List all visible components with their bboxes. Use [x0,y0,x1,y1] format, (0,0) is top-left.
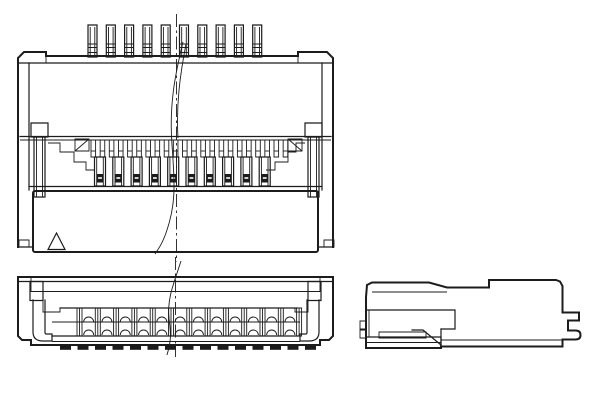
bottom-view [18,257,333,357]
scallop-cell [248,317,258,335]
scallop-cell [212,317,222,335]
pin [106,25,115,57]
contact-finger [113,157,124,186]
pin [234,25,243,57]
hook-right [300,300,319,341]
scallop-cell [267,317,277,335]
solder-dash [218,346,229,350]
solder-dash [113,346,124,350]
pin [216,25,225,57]
solder-dash [78,346,89,350]
contact-finger [241,157,252,186]
latch-step-left [48,143,94,170]
latch-step-right [266,143,305,170]
contact-tooth [247,140,252,157]
contact-tooth [118,140,123,157]
pin [198,25,207,57]
contact-finger [131,157,142,186]
contact-tooth [137,140,142,157]
contact-tooth [164,140,169,157]
contact-tooth [128,140,133,157]
foot-notch-left [19,240,29,247]
contact-finger [186,157,197,186]
end-bracket-left [75,139,89,151]
contact-finger [204,157,215,186]
contact-tooth [237,140,242,157]
pin [125,25,134,57]
side-view [360,280,581,348]
contact-tooth [228,140,233,157]
contact-fingers [95,157,271,186]
scallop-cell [102,317,112,335]
actuator-front [33,191,318,252]
end-block-left [30,282,43,301]
connector-drawing [0,0,600,411]
contact-tooth [210,140,215,157]
end-bracket-right [288,139,302,151]
solder-dash [130,346,141,350]
scallop-cell [84,317,94,335]
solder-tail-dashes [60,346,316,350]
contact-tooth [219,140,224,157]
contact-tooth [283,140,288,157]
end-block-right [308,282,321,301]
solder-dash [148,346,159,350]
contact-tooth [265,140,270,157]
scallop-cell [285,317,295,335]
contact-finger [223,157,234,186]
solder-dash [60,346,71,350]
contact-tooth [91,140,96,157]
scallop-cell [193,317,203,335]
front-view [18,14,334,262]
band-step-left [43,292,77,312]
pin [88,25,97,57]
scallop-cell [157,317,167,335]
pin [253,25,262,57]
contact-teeth [91,140,288,157]
scallop-cell [120,317,130,335]
hook-left [33,300,52,341]
solder-dash [95,346,106,350]
pin [161,25,170,57]
scallop-cell [230,317,240,335]
solder-dash [253,346,264,350]
solder-dash [183,346,194,350]
solder-dash [305,346,316,350]
contact-tooth [109,140,114,157]
contact-finger [259,157,270,186]
contact-finger [149,157,160,186]
side-mid-seam [366,310,455,329]
contact-tooth [146,140,151,157]
solder-dash [200,346,211,350]
contact-tooth [100,140,105,157]
contact-tooth [173,140,178,157]
solder-dash [270,346,281,350]
contact-tooth [256,140,261,157]
contact-tooth [274,140,279,157]
solder-dash [288,346,299,350]
contact-tooth [183,140,188,157]
pin [143,25,152,57]
technical-drawing-page [0,0,600,411]
scallop-cell [139,317,149,335]
housing-outline [18,52,333,247]
solder-foot [366,329,441,348]
break-line-front-second [177,44,186,138]
scallop-cell [175,317,185,335]
top-pins [88,25,262,57]
solder-dash [165,346,176,350]
polarity-triangle-mark [48,233,65,250]
contact-tooth [192,140,197,157]
contact-tooth [201,140,206,157]
contact-tooth [155,140,160,157]
contact-finger [95,157,106,186]
solder-dash [235,346,246,350]
